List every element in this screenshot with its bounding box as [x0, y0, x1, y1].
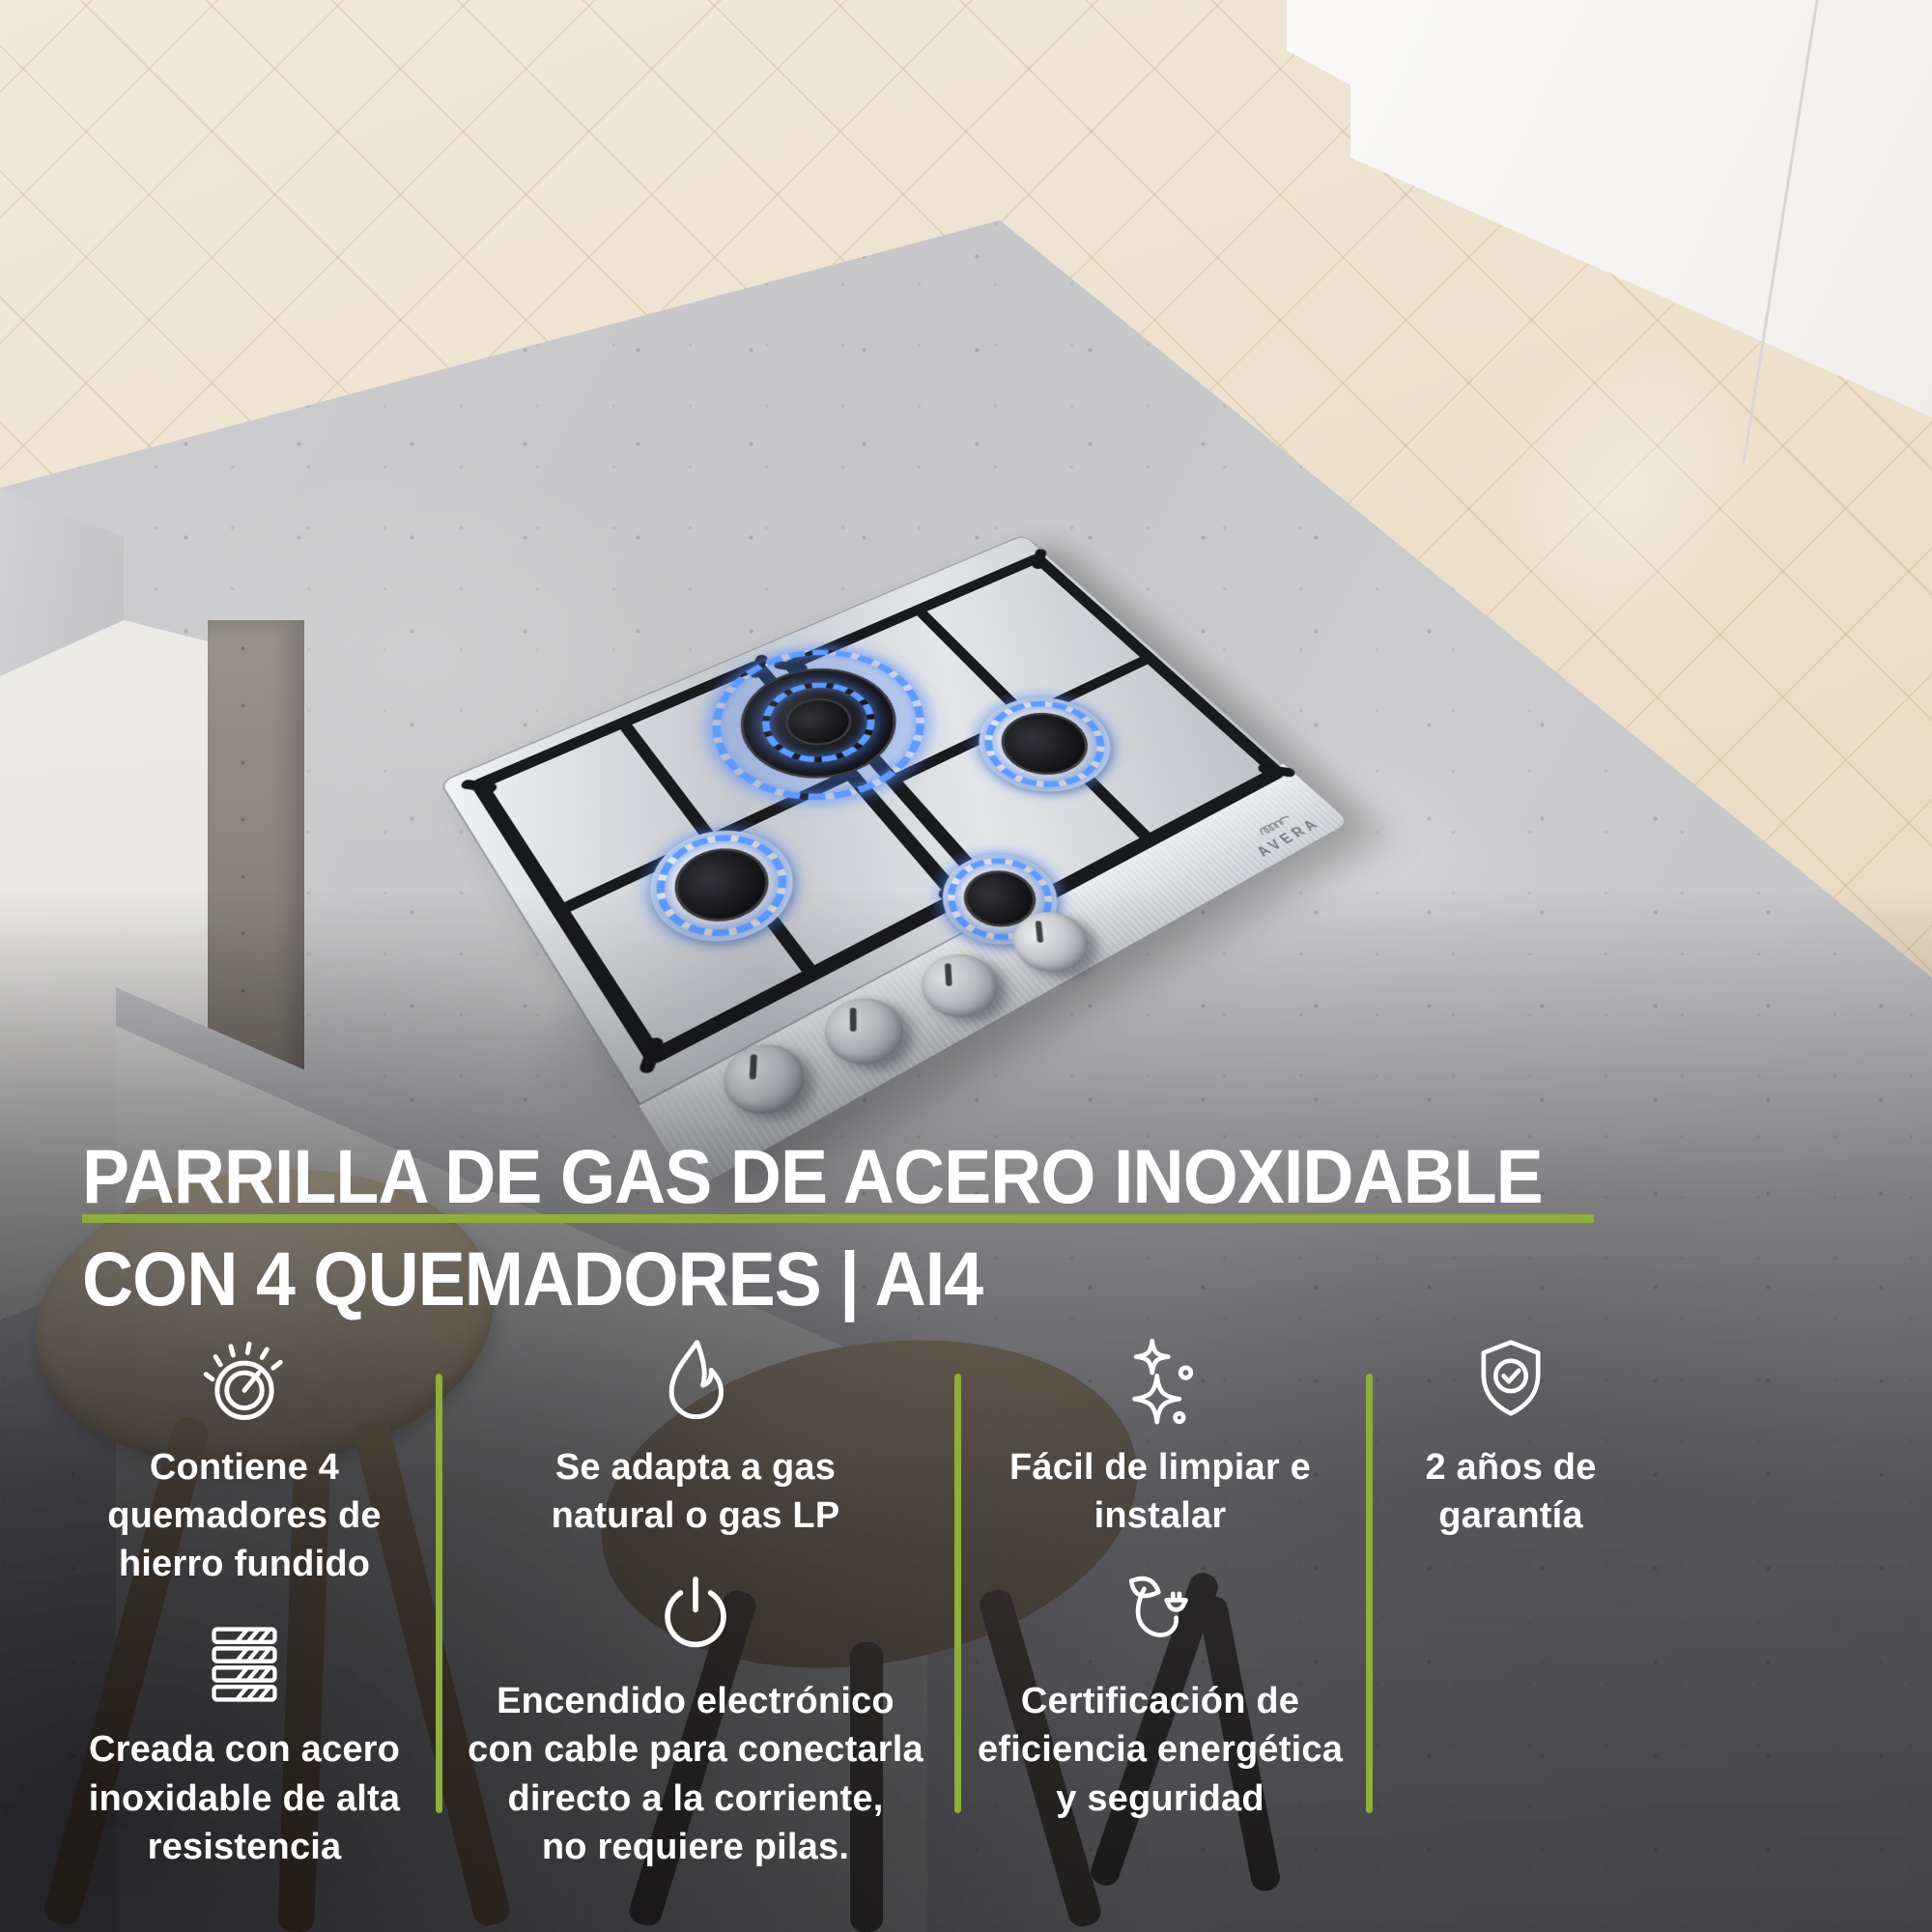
feature-text: Contiene 4 quemadores de hierro fundido	[107, 1443, 381, 1588]
feature-text: Certificación de eficiencia energética y…	[978, 1677, 1343, 1822]
title-line-2: CON 4 QUEMADORES | AI4	[82, 1235, 982, 1323]
flame-icon	[644, 1331, 747, 1434]
sparkles-icon	[1109, 1331, 1211, 1434]
feature-ignition: Encendido electrónico con cable para con…	[468, 1565, 923, 1871]
feature-certification: Certificación de eficiencia energética y…	[978, 1565, 1343, 1822]
feature-text: Encendido electrónico con cable para con…	[468, 1677, 923, 1871]
feature-divider-2	[954, 1374, 961, 1813]
feature-divider-1	[436, 1374, 442, 1813]
feature-gas: Se adapta a gas natural o gas LP	[552, 1331, 840, 1540]
feature-column-4: 2 años de garantía	[1376, 1331, 1646, 1540]
shield-check-icon	[1460, 1331, 1562, 1434]
feature-clean: Fácil de limpiar e instalar	[1009, 1331, 1311, 1540]
product-ad-canvas: AVERA PARRILLA DE GAS DE ACERO INOXIDABL…	[0, 0, 1932, 1932]
feature-column-1: Contiene 4 quemadores de hierro fundido …	[53, 1331, 436, 1871]
feature-column-2: Se adapta a gas natural o gas LP Encendi…	[446, 1331, 945, 1871]
feature-column-3: Fácil de limpiar e instalar Certificació…	[964, 1331, 1356, 1823]
feature-warranty: 2 años de garantía	[1425, 1331, 1596, 1540]
feature-divider-3	[1366, 1374, 1373, 1813]
feature-text: Se adapta a gas natural o gas LP	[552, 1443, 840, 1540]
feature-steel: Creada con acero inoxidable de alta resi…	[89, 1613, 400, 1870]
feature-text: Creada con acero inoxidable de alta resi…	[89, 1725, 400, 1870]
title-line-1: PARRILLA DE GAS DE ACERO INOXIDABLE	[82, 1132, 1543, 1221]
title-accent-underline	[82, 1214, 1594, 1223]
feature-text: Fácil de limpiar e instalar	[1009, 1443, 1311, 1540]
steel-sheets-icon	[193, 1613, 296, 1716]
eco-plug-icon	[1109, 1565, 1211, 1667]
feature-burners: Contiene 4 quemadores de hierro fundido	[107, 1331, 381, 1588]
power-icon	[644, 1565, 747, 1667]
burner-knob-icon	[193, 1331, 296, 1434]
feature-text: 2 años de garantía	[1425, 1443, 1596, 1540]
